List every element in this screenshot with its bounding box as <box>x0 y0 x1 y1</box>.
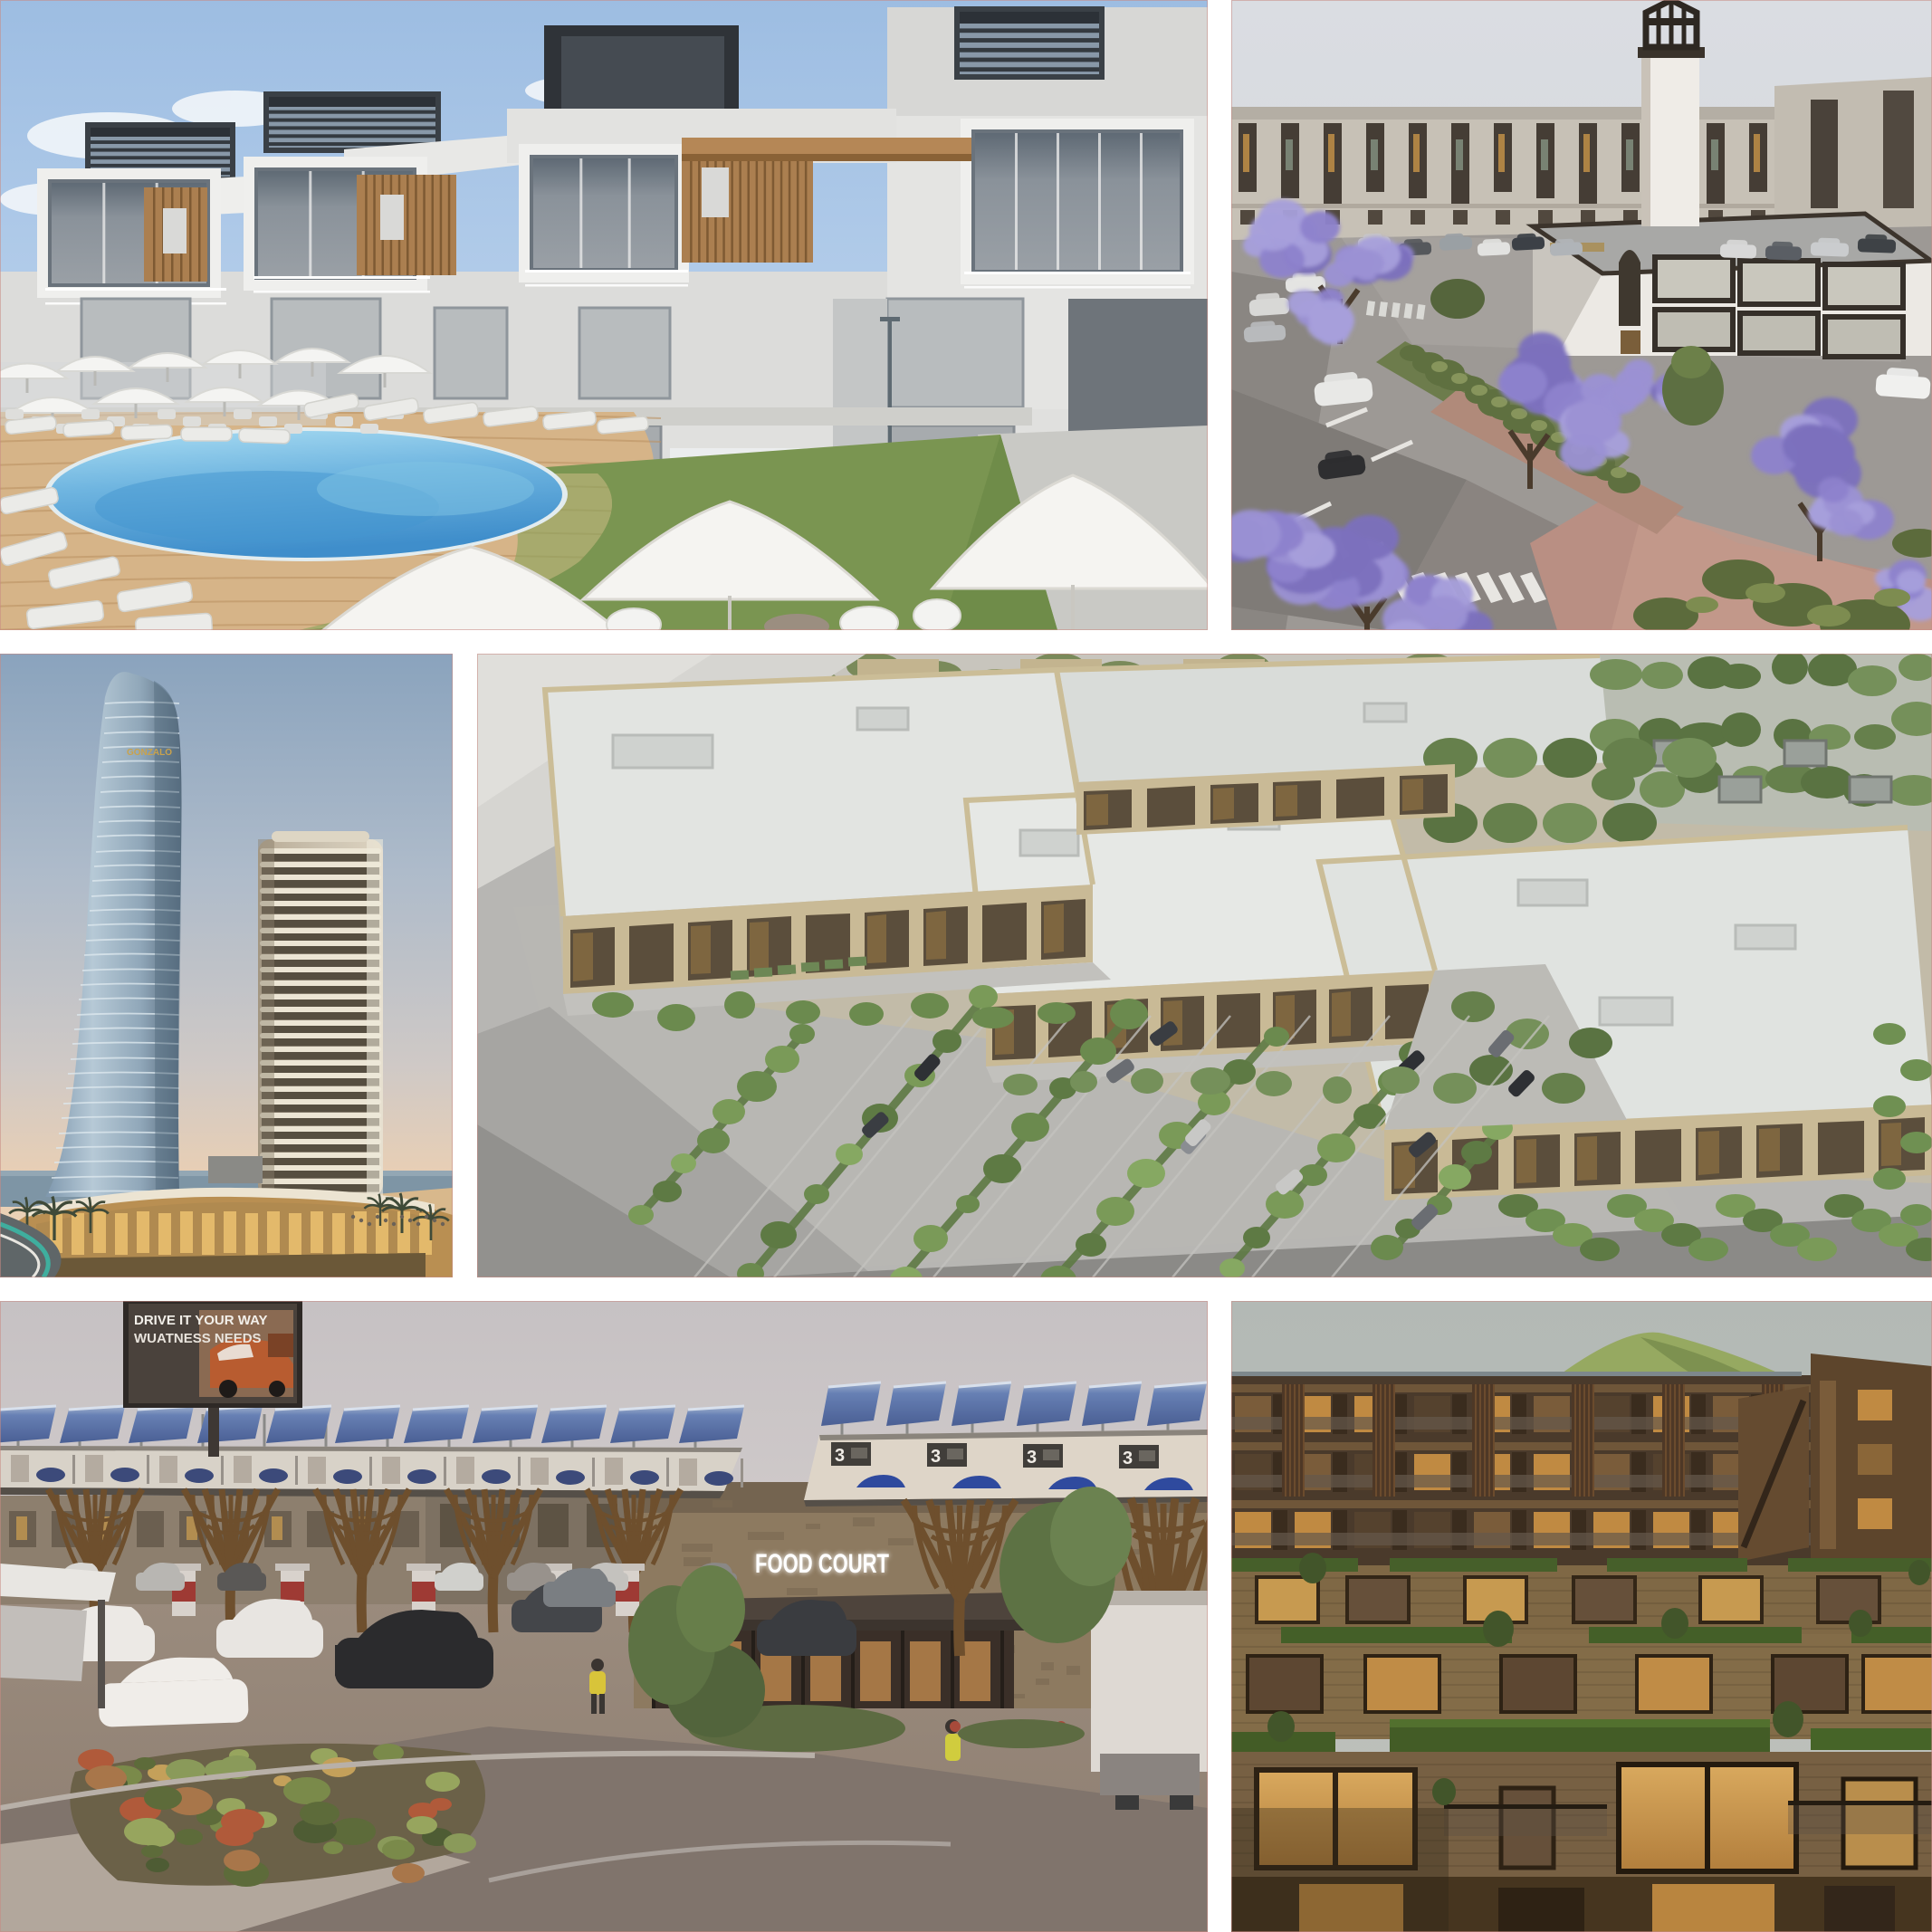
svg-text:FOOD COURT: FOOD COURT <box>755 1549 889 1579</box>
svg-text:3: 3 <box>1123 1449 1133 1468</box>
svg-text:3: 3 <box>931 1447 941 1467</box>
svg-text:DRIVE IT YOUR WAY: DRIVE IT YOUR WAY <box>134 1313 268 1328</box>
svg-text:WUATNESS NEEDS: WUATNESS NEEDS <box>134 1331 262 1346</box>
svg-text:3: 3 <box>835 1446 845 1466</box>
svg-text:3: 3 <box>1027 1448 1037 1468</box>
svg-text:GONZALO: GONZALO <box>127 748 172 758</box>
